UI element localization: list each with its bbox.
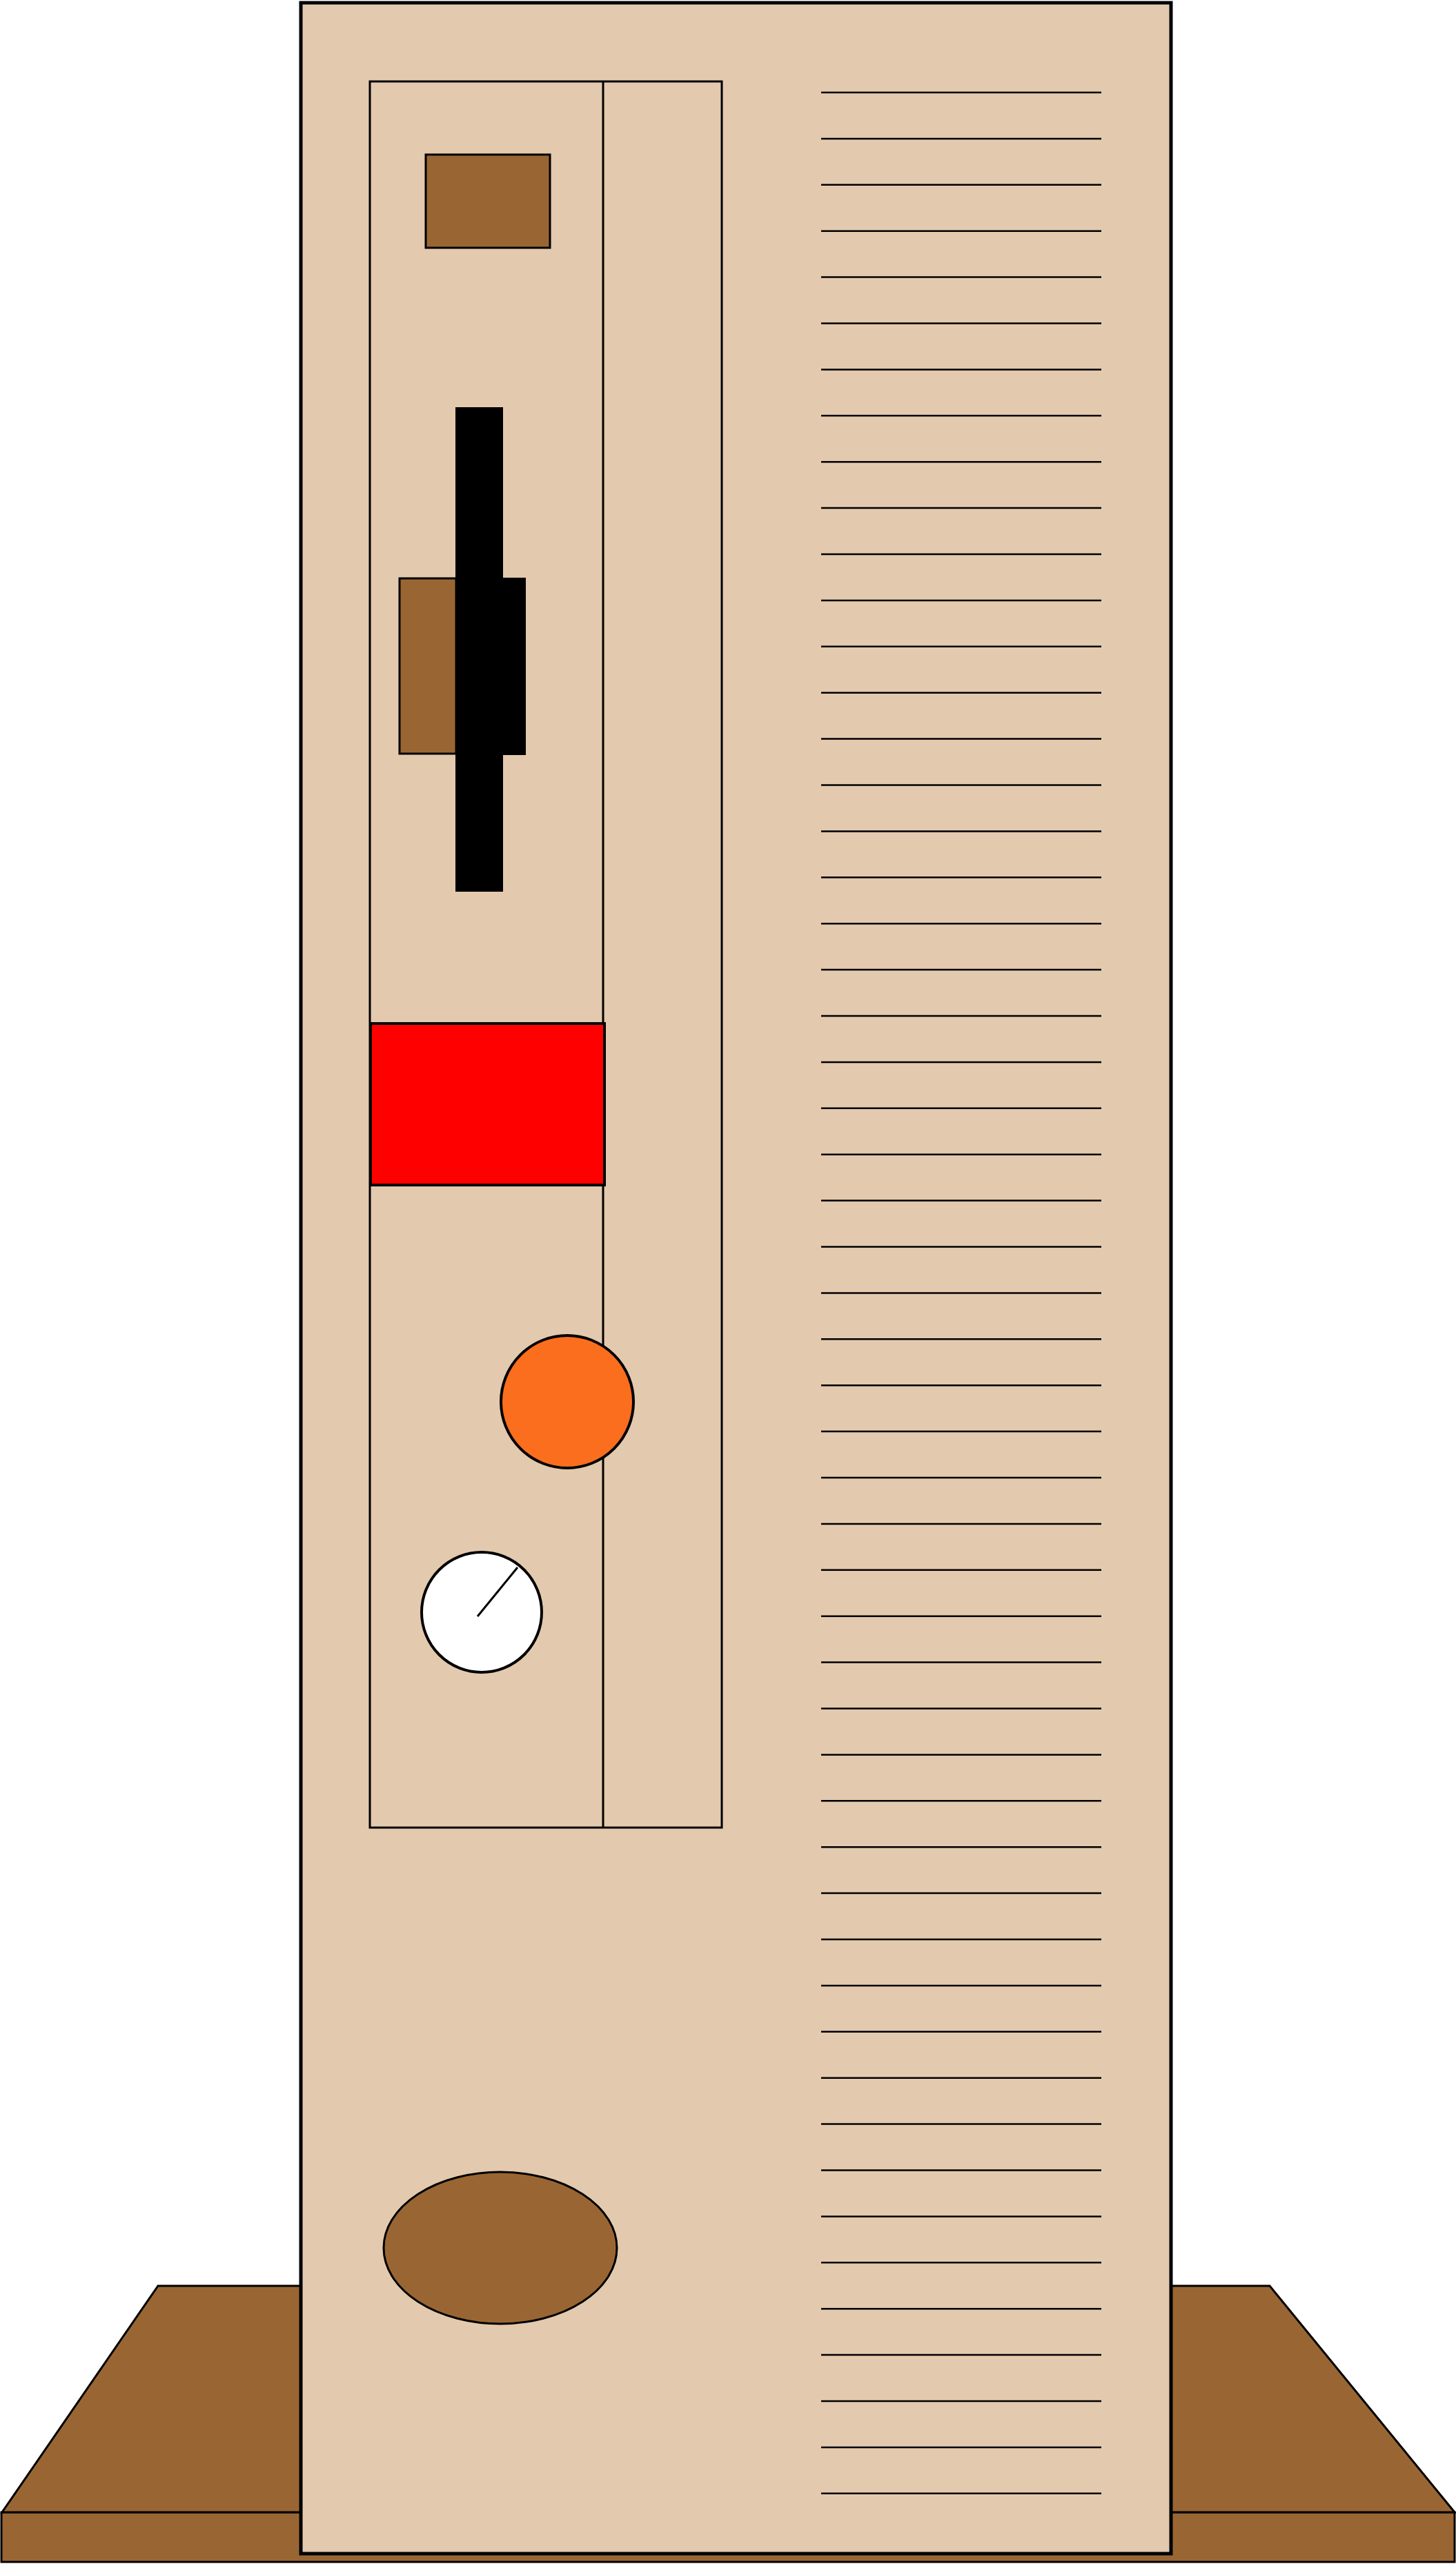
base-right-foot (1171, 2286, 1455, 2512)
brand-badge-square (426, 155, 550, 248)
illustration-canvas (0, 0, 1456, 2564)
computer-tower-illustration (0, 0, 1456, 2564)
turbo-button (501, 1335, 633, 1468)
power-button (371, 1024, 604, 1185)
floppy-slot-wide (455, 578, 526, 755)
floppy-eject-button (400, 578, 456, 754)
speaker-oval (384, 2172, 617, 2324)
base-left-foot (2, 2286, 302, 2512)
